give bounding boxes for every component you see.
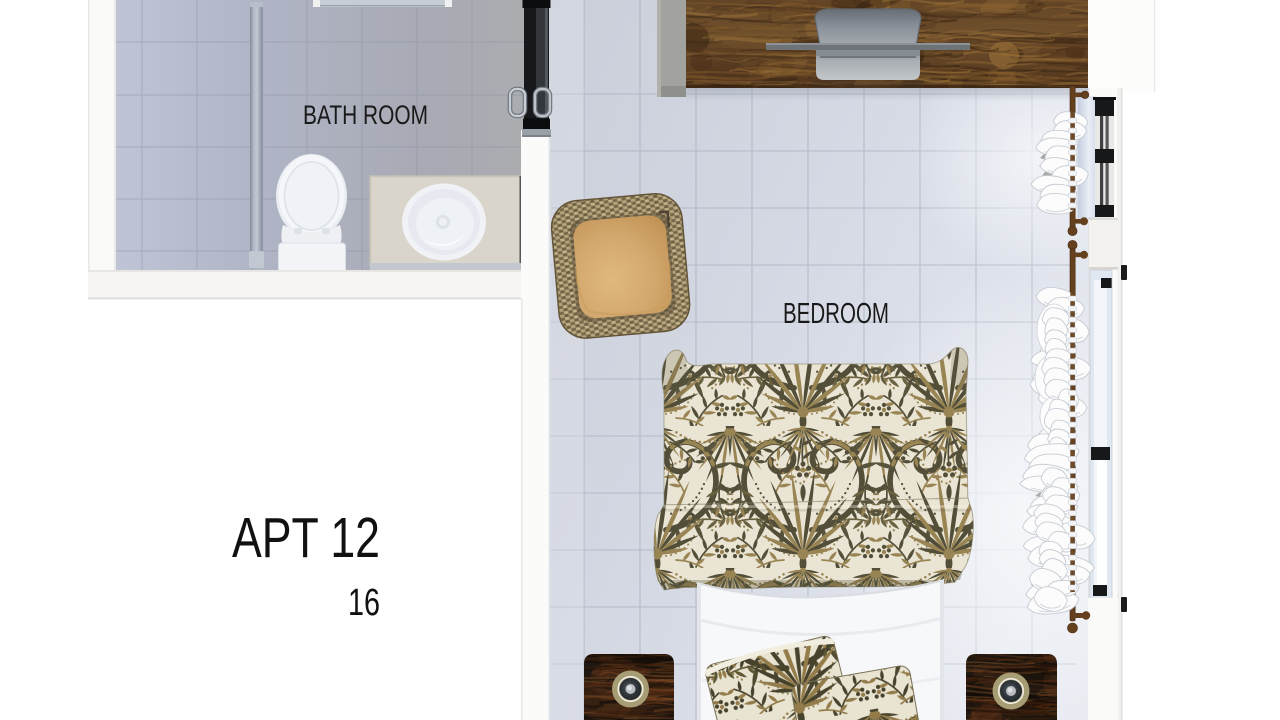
- svg-text:16: 16: [348, 582, 380, 624]
- svg-text:BATH ROOM: BATH ROOM: [303, 100, 428, 130]
- svg-text:APT 12: APT 12: [232, 506, 380, 570]
- svg-text:BEDROOM: BEDROOM: [783, 298, 889, 330]
